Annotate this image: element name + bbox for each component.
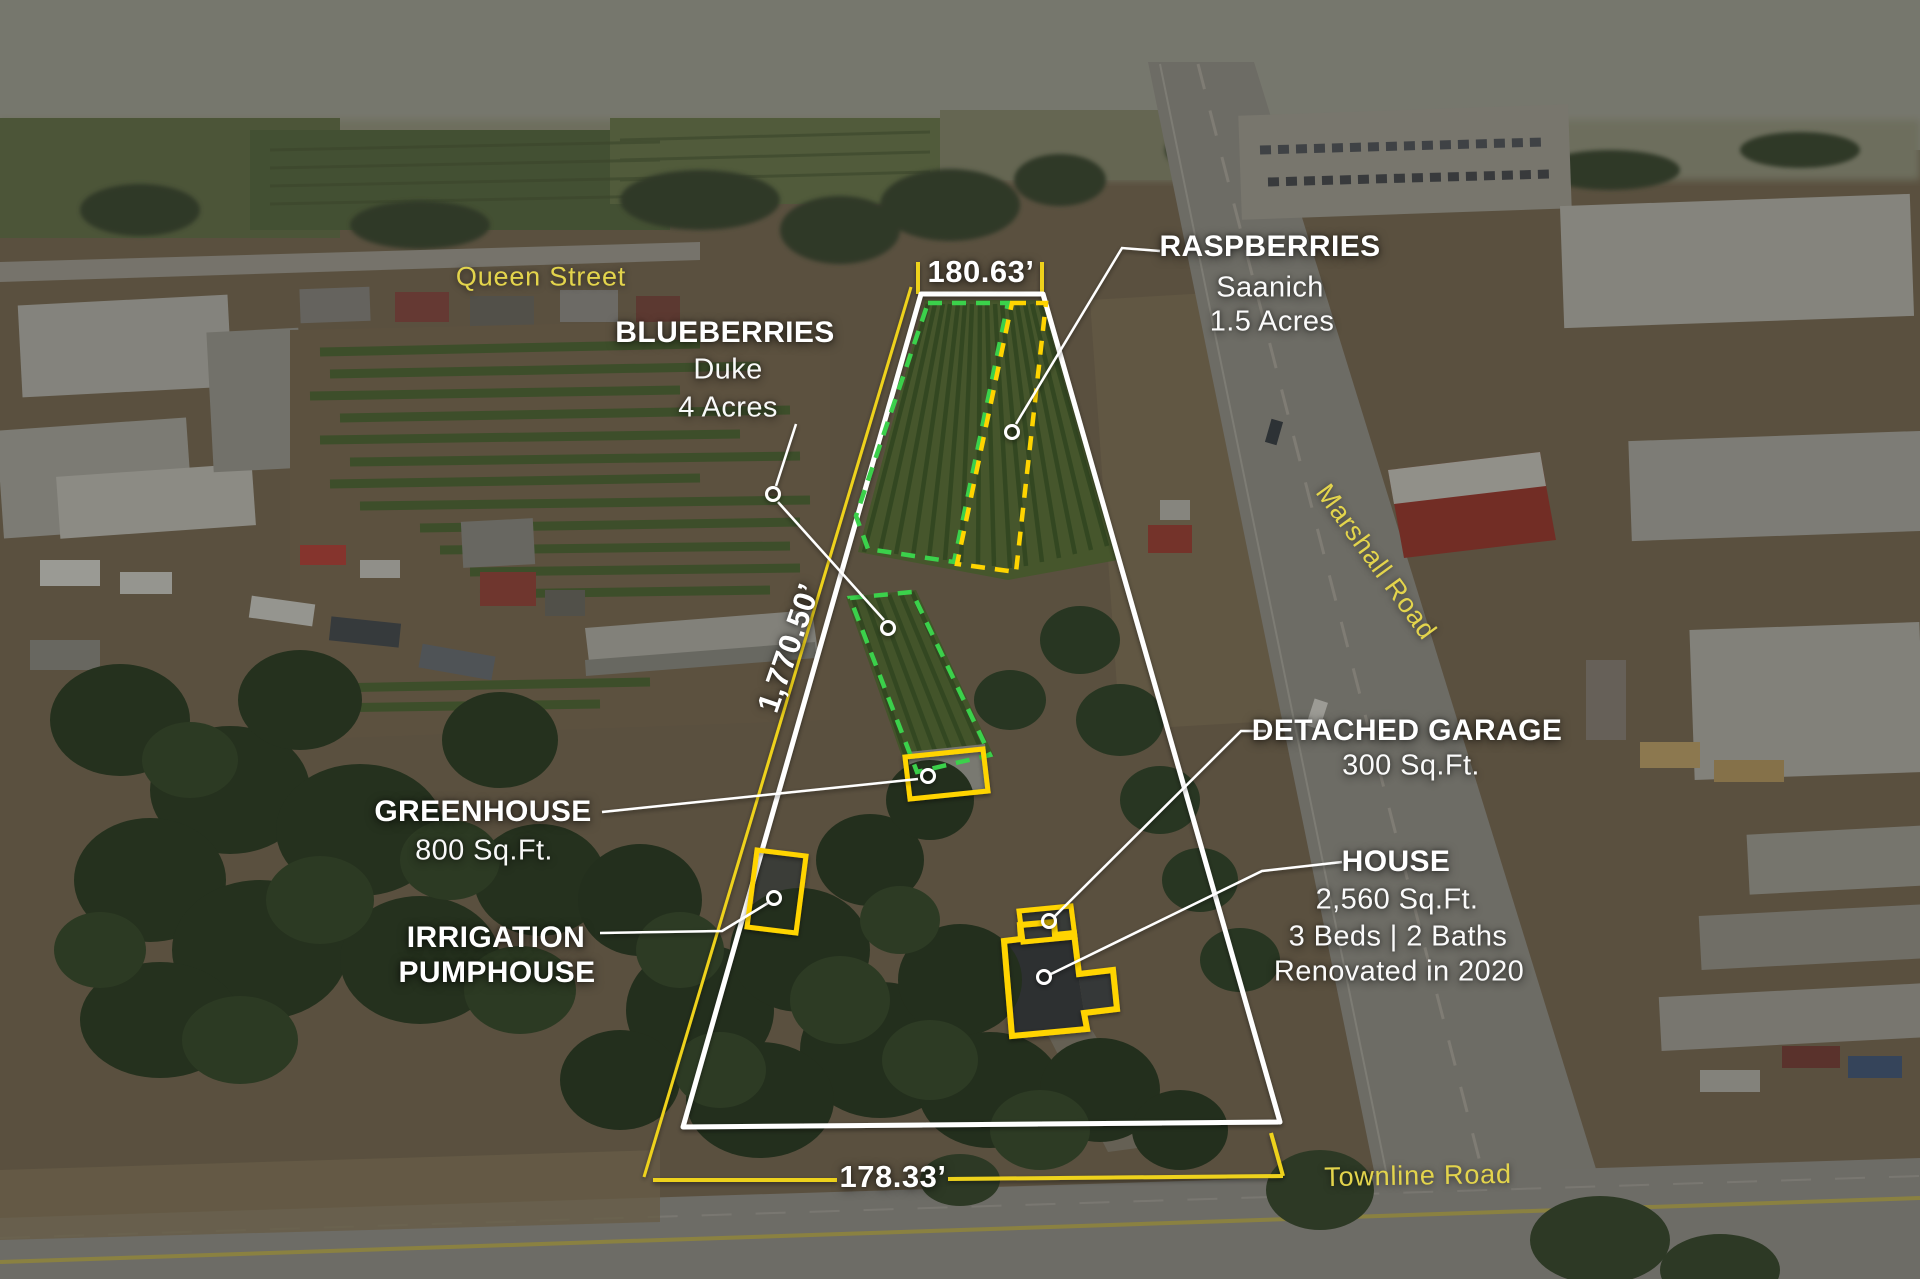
garage-marker	[1043, 915, 1056, 928]
top-frontage-dimension: 180.63’	[928, 254, 1035, 290]
greenhouse-title: GREENHOUSE	[374, 795, 591, 829]
house-beds-baths: 3 Beds | 2 Baths	[1289, 921, 1508, 954]
aerial-photo-canvas	[0, 0, 1920, 1279]
garage-size: 300 Sq.Ft.	[1342, 750, 1480, 783]
garage-title: DETACHED GARAGE	[1252, 714, 1562, 748]
house-title: HOUSE	[1342, 845, 1451, 879]
bottom-frontage-dimension: 178.33’	[840, 1159, 947, 1195]
blueberries-area: 4 Acres	[678, 392, 778, 425]
raspberries-area: 1.5 Acres	[1210, 306, 1335, 339]
pumphouse-title-line1: IRRIGATION	[407, 921, 585, 955]
blueberries-title: BLUEBERRIES	[615, 316, 834, 350]
raspberries-title: RASPBERRIES	[1159, 230, 1380, 264]
house-marker	[1038, 971, 1051, 984]
pumphouse-marker	[768, 892, 781, 905]
blueberries-marker	[767, 488, 780, 501]
house-size: 2,560 Sq.Ft.	[1316, 884, 1479, 917]
blueberries-marker-2	[882, 622, 895, 635]
townline-road-label: Townline Road	[1324, 1159, 1512, 1193]
photo-background	[0, 0, 1920, 1279]
raspberries-variety: Saanich	[1216, 272, 1324, 305]
raspberries-marker	[1006, 426, 1019, 439]
pumphouse-title-line2: PUMPHOUSE	[399, 956, 596, 990]
greenhouse-marker	[922, 770, 935, 783]
annotated-aerial-property-photo: 180.63’ RASPBERRIES Saanich 1.5 Acres Qu…	[0, 0, 1920, 1279]
greenhouse-size: 800 Sq.Ft.	[415, 835, 553, 868]
blueberries-variety: Duke	[693, 354, 762, 387]
house-renovated: Renovated in 2020	[1274, 956, 1524, 989]
queen-street-label: Queen Street	[456, 262, 626, 293]
